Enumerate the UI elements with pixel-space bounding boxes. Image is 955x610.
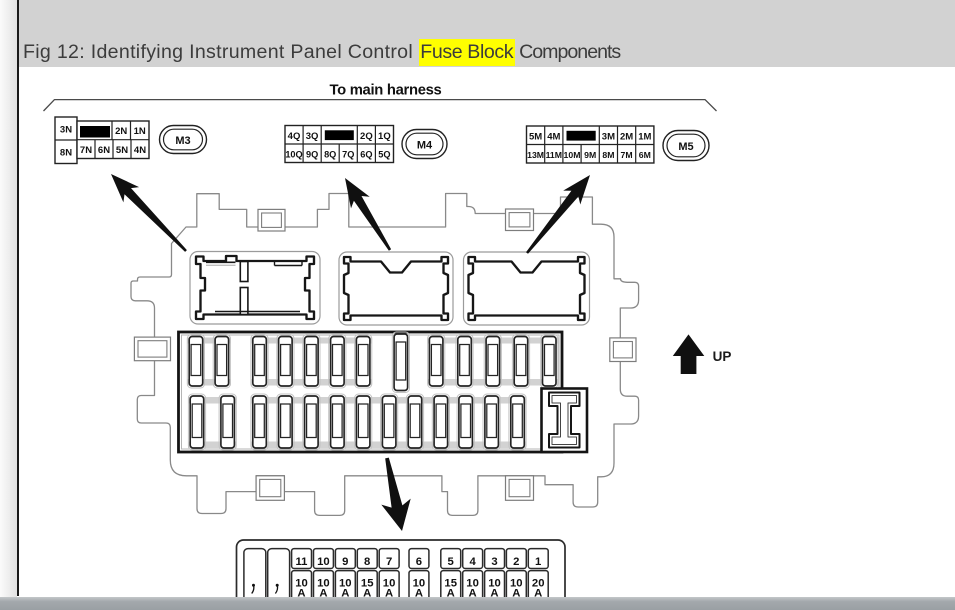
svg-text:M3: M3 (175, 135, 190, 147)
svg-text:8N: 8N (60, 148, 72, 159)
svg-text:5N: 5N (116, 145, 128, 156)
svg-text:2: 2 (513, 556, 519, 568)
svg-text:7M: 7M (621, 150, 633, 160)
svg-text:1M: 1M (638, 132, 651, 143)
svg-text:8Q: 8Q (324, 150, 336, 160)
svg-text:1Q: 1Q (378, 131, 391, 142)
svg-text:8: 8 (364, 556, 370, 568)
svg-text:UP: UP (713, 349, 732, 364)
svg-text:11M: 11M (546, 150, 562, 160)
svg-text:9Q: 9Q (306, 150, 318, 160)
svg-text:M5: M5 (678, 141, 693, 153)
svg-text:1: 1 (535, 556, 541, 568)
svg-text:7: 7 (386, 556, 392, 568)
svg-text:2M: 2M (620, 132, 633, 143)
svg-text:9: 9 (342, 556, 348, 568)
svg-text:6N: 6N (98, 145, 110, 156)
svg-text:6Q: 6Q (360, 150, 372, 160)
svg-text:6: 6 (416, 556, 422, 568)
svg-text:3N: 3N (60, 124, 72, 135)
svg-text:1N: 1N (134, 126, 146, 137)
svg-text:3M: 3M (602, 132, 615, 143)
svg-text:4N: 4N (134, 145, 146, 156)
svg-text:M4: M4 (417, 139, 433, 151)
svg-text:5: 5 (448, 556, 454, 568)
svg-text:10: 10 (317, 556, 330, 568)
svg-text:To main harness: To main harness (330, 82, 442, 98)
svg-text:2Q: 2Q (360, 131, 373, 142)
svg-text:4M: 4M (547, 132, 560, 143)
svg-text:10M: 10M (564, 150, 581, 160)
svg-text:9M: 9M (584, 150, 596, 160)
svg-text:2N: 2N (115, 126, 127, 137)
svg-text:7N: 7N (80, 145, 92, 156)
svg-text:5Q: 5Q (378, 150, 390, 160)
svg-text:3Q: 3Q (306, 131, 319, 142)
svg-text:13M: 13M (527, 150, 544, 160)
svg-text:8M: 8M (602, 150, 614, 160)
svg-text:5M: 5M (529, 132, 542, 143)
svg-text:4: 4 (469, 556, 476, 568)
svg-text:10Q: 10Q (285, 150, 302, 160)
svg-text:7Q: 7Q (342, 150, 354, 160)
svg-text:4Q: 4Q (288, 131, 301, 142)
svg-text:3: 3 (491, 556, 497, 568)
svg-text:11: 11 (296, 556, 308, 568)
svg-text:6M: 6M (639, 150, 651, 160)
